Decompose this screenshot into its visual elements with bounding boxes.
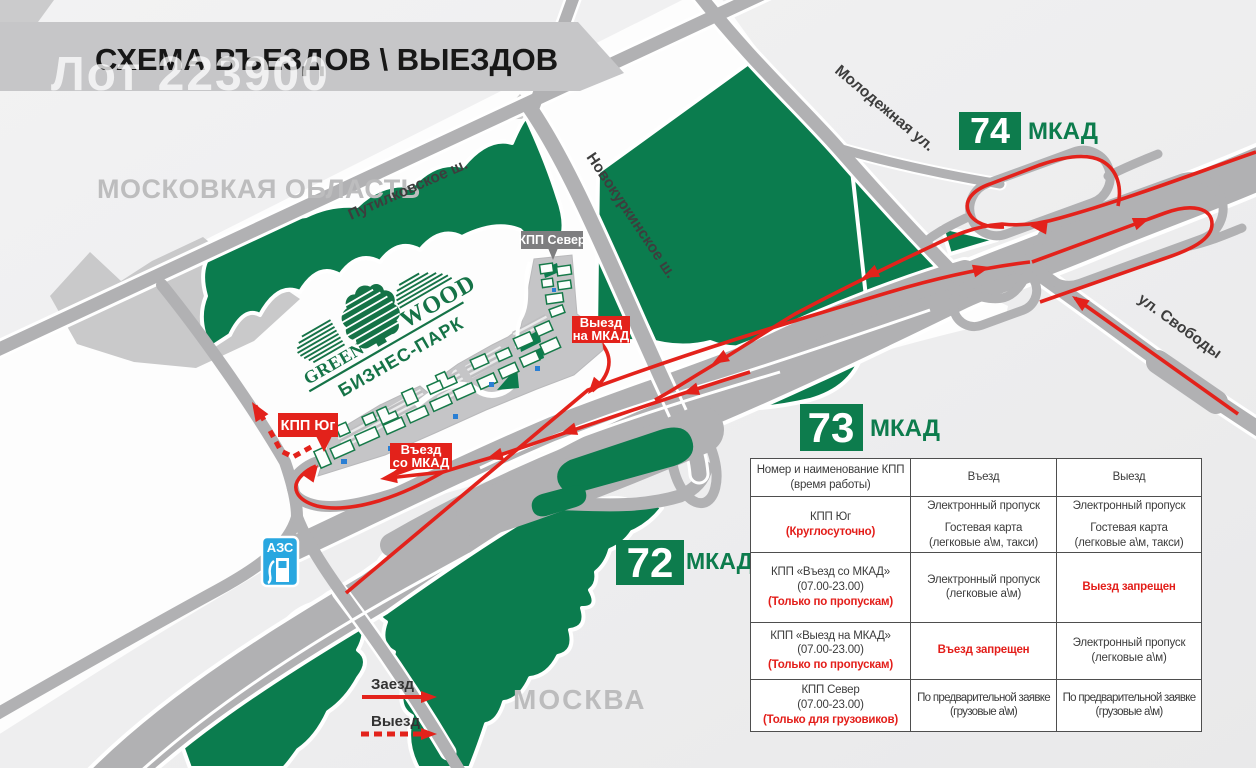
svg-text:72: 72 bbox=[627, 539, 674, 586]
svg-text:АЗС: АЗС bbox=[267, 540, 294, 555]
svg-text:Лот 223900: Лот 223900 bbox=[51, 48, 330, 101]
svg-text:74: 74 bbox=[970, 110, 1010, 151]
svg-text:МКАД: МКАД bbox=[1028, 118, 1098, 145]
svg-text:КПП Юг: КПП Юг bbox=[281, 418, 336, 434]
svg-text:Заезд: Заезд bbox=[371, 676, 415, 693]
svg-text:на МКАД: на МКАД bbox=[573, 328, 630, 343]
svg-text:МКАД: МКАД bbox=[686, 548, 753, 574]
svg-text:со МКАД: со МКАД bbox=[393, 455, 450, 470]
svg-text:МОСКВА: МОСКВА bbox=[513, 684, 646, 715]
svg-text:Выезд: Выезд bbox=[371, 713, 420, 730]
svg-text:КПП Север: КПП Север bbox=[518, 233, 586, 247]
svg-text:МКАД: МКАД bbox=[870, 415, 940, 442]
svg-text:73: 73 bbox=[808, 404, 855, 451]
